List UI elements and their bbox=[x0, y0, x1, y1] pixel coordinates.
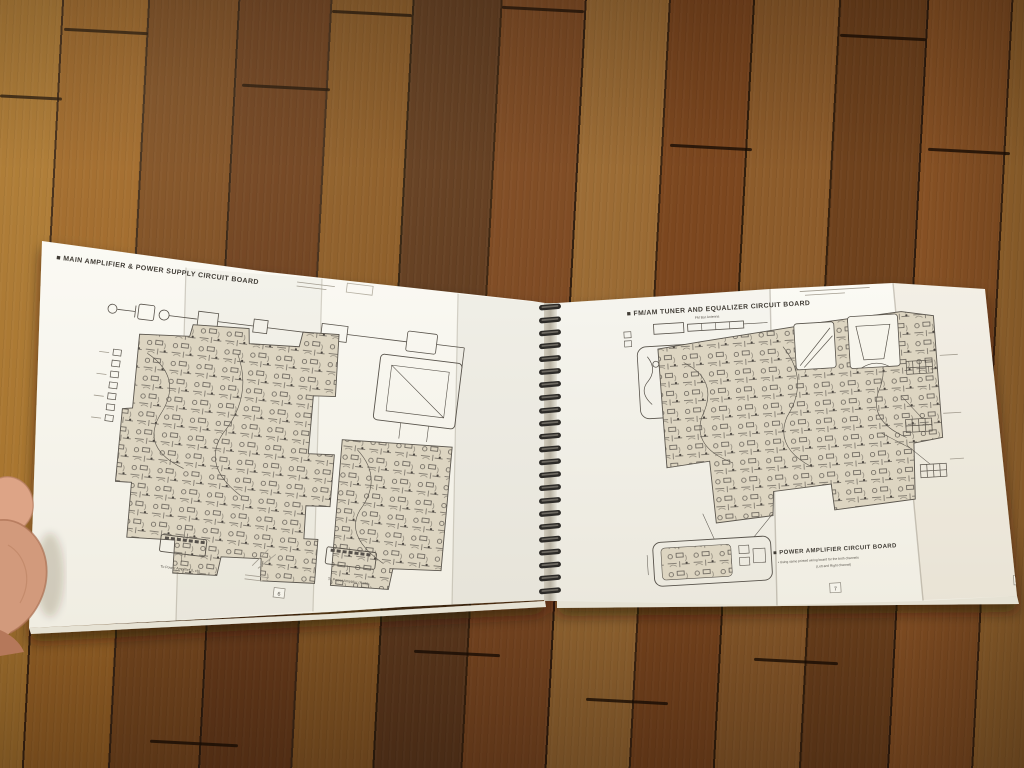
page-number-box: 7 bbox=[830, 583, 842, 593]
page-number-box: 8 bbox=[1013, 575, 1024, 585]
page-number: 7 bbox=[834, 587, 837, 593]
fold-panel-shade bbox=[452, 294, 545, 605]
manual-foldout: ■ MAIN AMPLIFIER & POWER SUPPLY CIRCUIT … bbox=[0, 0, 1024, 768]
photo-scene: { "manual": { "left_page": { "title": "■… bbox=[0, 0, 1024, 768]
spiral-binding bbox=[539, 303, 561, 594]
page-number-box: 6 bbox=[273, 588, 285, 599]
page-number: 8 bbox=[1018, 579, 1021, 585]
